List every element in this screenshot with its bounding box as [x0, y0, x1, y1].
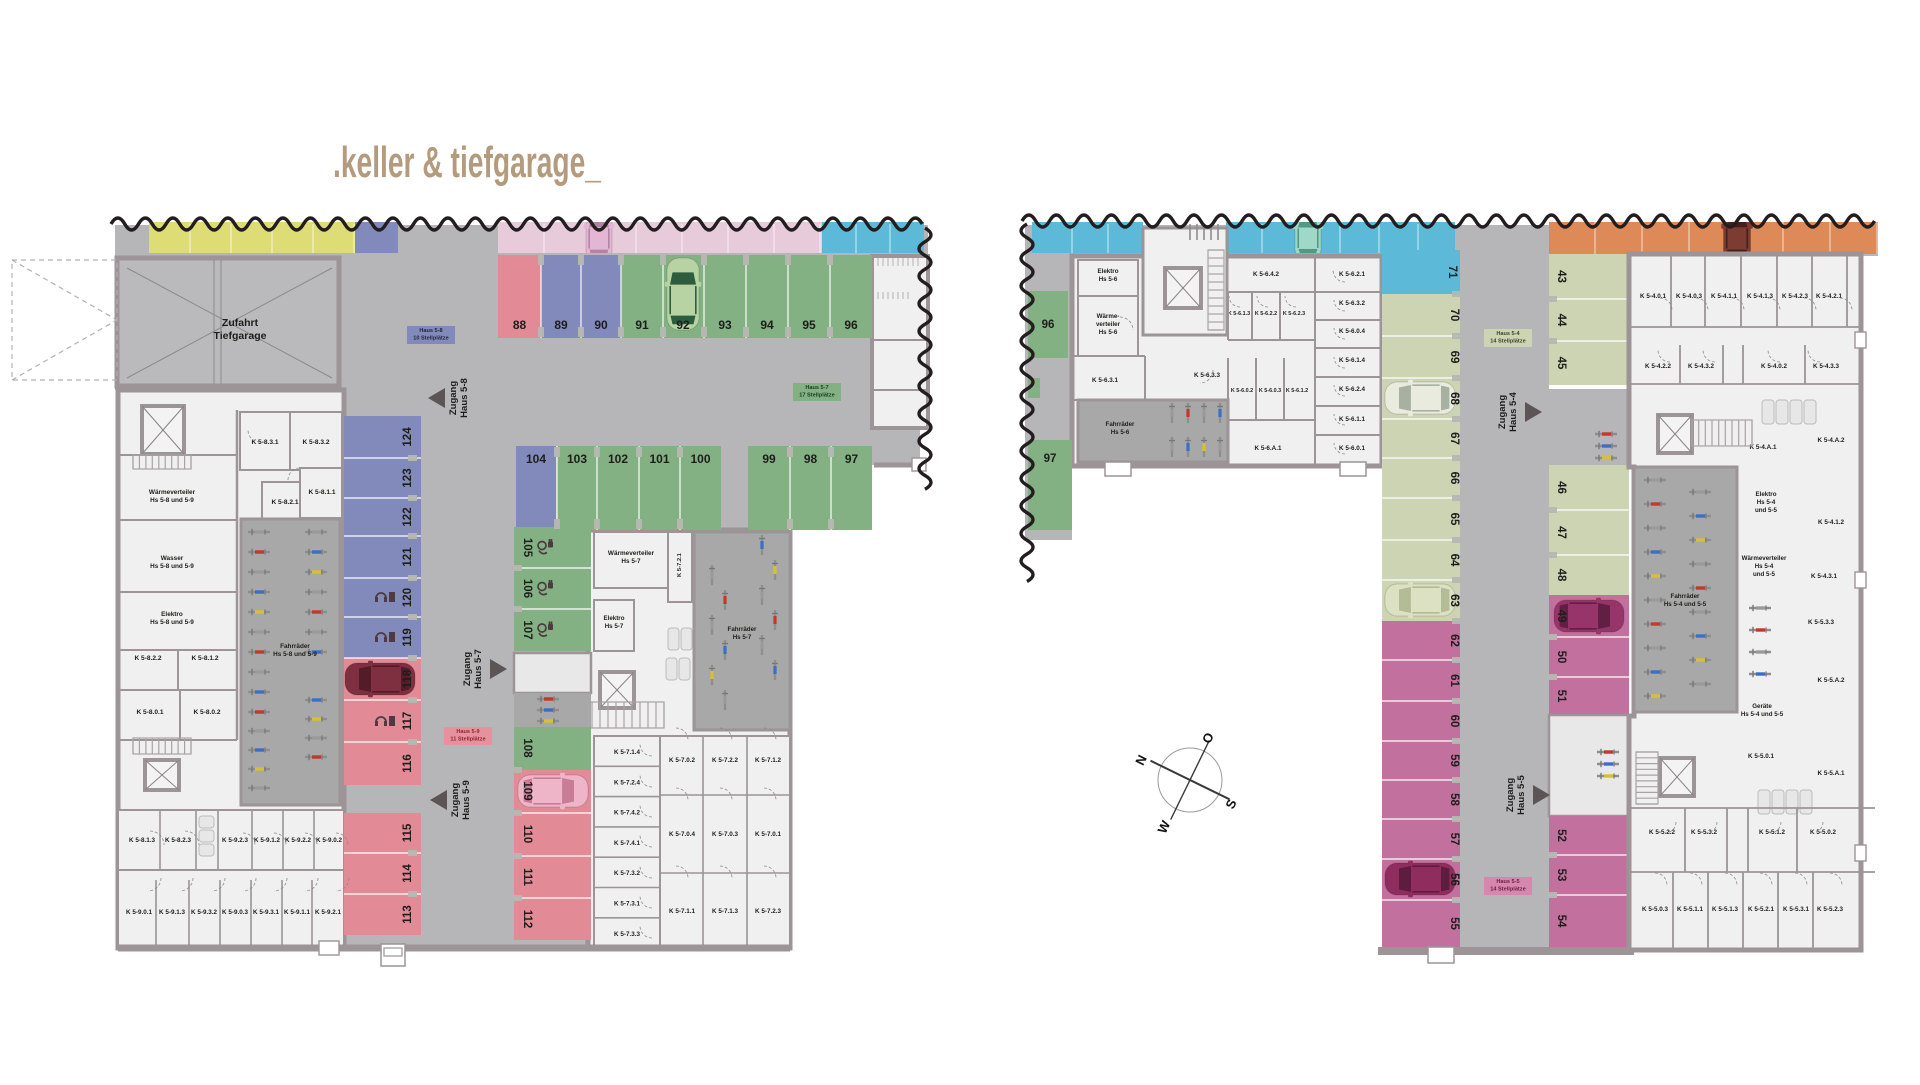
- svg-text:K 5-6.3.1: K 5-6.3.1: [1092, 377, 1118, 384]
- svg-text:K 5-4.3.1: K 5-4.3.1: [1811, 573, 1837, 580]
- svg-text:49: 49: [1555, 610, 1567, 623]
- svg-text:K 5-4.1.1: K 5-4.1.1: [1711, 293, 1737, 300]
- svg-text:K 5-6.0.4: K 5-6.0.4: [1339, 328, 1365, 335]
- svg-text:44: 44: [1555, 314, 1567, 327]
- svg-text:Wasser: Wasser: [161, 555, 184, 562]
- svg-text:K 5-4.0.2: K 5-4.0.2: [1761, 363, 1787, 370]
- svg-text:Wärmeverteiler: Wärmeverteiler: [149, 489, 196, 496]
- svg-text:97: 97: [845, 452, 859, 466]
- svg-text:Haus 5-7: Haus 5-7: [805, 385, 828, 391]
- svg-text:K 5-5.0.3: K 5-5.0.3: [1642, 906, 1668, 913]
- svg-text:K 5-5.A.2: K 5-5.A.2: [1818, 677, 1845, 684]
- svg-text:K 5-7.1.4: K 5-7.1.4: [614, 749, 640, 756]
- svg-text:Zugang: Zugang: [1497, 395, 1508, 429]
- svg-text:K 5-7.3.2: K 5-7.3.2: [614, 870, 640, 877]
- svg-text:110: 110: [521, 825, 533, 844]
- svg-text:K 5-8.0.1: K 5-8.0.1: [136, 709, 163, 716]
- svg-text:102: 102: [608, 452, 628, 466]
- svg-text:17 Stellplätze: 17 Stellplätze: [799, 393, 834, 399]
- svg-text:K 5-4.3.2: K 5-4.3.2: [1688, 363, 1714, 370]
- svg-text:Hs 5-8 und 5-9: Hs 5-8 und 5-9: [150, 563, 194, 570]
- svg-text:94: 94: [760, 318, 774, 332]
- svg-text:114: 114: [402, 864, 414, 883]
- svg-text:K 5-7.4.2: K 5-7.4.2: [614, 810, 640, 817]
- svg-text:97: 97: [1044, 453, 1057, 465]
- svg-text:96: 96: [1042, 319, 1055, 331]
- svg-text:.keller & tiefgarage_: .keller & tiefgarage_: [333, 138, 601, 187]
- svg-text:K 5-4.0.1: K 5-4.0.1: [1640, 293, 1666, 300]
- svg-text:K 5-8.1.2: K 5-8.1.2: [191, 655, 218, 662]
- svg-text:10 Stellplätze: 10 Stellplätze: [413, 336, 448, 342]
- svg-text:117: 117: [402, 712, 414, 731]
- svg-text:55: 55: [1448, 917, 1460, 930]
- svg-text:K 5-9.1.1: K 5-9.1.1: [284, 909, 310, 916]
- svg-text:K 5-5.2.1: K 5-5.2.1: [1748, 906, 1774, 913]
- svg-text:K 5-6.0.2: K 5-6.0.2: [1231, 388, 1253, 394]
- svg-text:K 5-9.3.1: K 5-9.3.1: [253, 909, 279, 916]
- svg-text:Zufahrt: Zufahrt: [222, 317, 259, 329]
- svg-text:K 5-7.2.2: K 5-7.2.2: [712, 757, 738, 764]
- svg-text:56: 56: [1448, 873, 1460, 886]
- svg-text:43: 43: [1555, 270, 1567, 283]
- svg-text:Hs 5-8 und 5-9: Hs 5-8 und 5-9: [273, 651, 317, 658]
- svg-text:K 5-4.3.3: K 5-4.3.3: [1813, 363, 1839, 370]
- svg-text:Hs 5-6: Hs 5-6: [1099, 276, 1118, 283]
- svg-text:Zugang: Zugang: [450, 783, 461, 817]
- svg-text:92: 92: [676, 318, 690, 332]
- svg-text:K 5-6.3.2: K 5-6.3.2: [1339, 300, 1365, 307]
- svg-text:52: 52: [1555, 829, 1567, 842]
- svg-text:109: 109: [521, 781, 533, 800]
- svg-text:K 5-9.0.3: K 5-9.0.3: [222, 909, 248, 916]
- svg-text:Fahrräder: Fahrräder: [728, 626, 757, 633]
- svg-text:90: 90: [594, 318, 608, 332]
- svg-text:K 5-6.1.1: K 5-6.1.1: [1339, 416, 1365, 423]
- svg-text:88: 88: [513, 318, 527, 332]
- svg-text:K 5-5.1.2: K 5-5.1.2: [1759, 829, 1785, 836]
- svg-text:K 5-4.2.3: K 5-4.2.3: [1782, 293, 1808, 300]
- svg-text:K 5-7.2.4: K 5-7.2.4: [614, 779, 640, 786]
- svg-text:K 5-9.3.2: K 5-9.3.2: [191, 909, 217, 916]
- svg-text:122: 122: [402, 507, 414, 526]
- svg-text:66: 66: [1448, 472, 1460, 485]
- svg-text:64: 64: [1448, 554, 1460, 567]
- svg-text:71: 71: [1446, 266, 1458, 279]
- svg-text:108: 108: [521, 738, 533, 758]
- svg-text:100: 100: [690, 452, 710, 466]
- svg-text:112: 112: [521, 910, 533, 929]
- svg-text:14 Stellplätze: 14 Stellplätze: [1490, 887, 1525, 893]
- svg-text:Zugang: Zugang: [462, 652, 473, 686]
- svg-text:60: 60: [1448, 715, 1460, 728]
- svg-text:K 5-6.1.3: K 5-6.1.3: [1228, 311, 1250, 317]
- svg-text:120: 120: [402, 588, 414, 607]
- svg-text:K 5-6.1.4: K 5-6.1.4: [1339, 357, 1365, 364]
- svg-text:K 5-6.0.3: K 5-6.0.3: [1259, 388, 1281, 394]
- svg-text:115: 115: [402, 823, 414, 842]
- svg-text:K 5-6.2.4: K 5-6.2.4: [1339, 386, 1365, 393]
- svg-text:Haus 5-8: Haus 5-8: [419, 328, 442, 334]
- svg-text:Zugang: Zugang: [448, 381, 459, 415]
- svg-text:103: 103: [567, 452, 587, 466]
- svg-text:Elektro: Elektro: [604, 615, 625, 622]
- svg-text:und 5-5: und 5-5: [1755, 507, 1778, 514]
- svg-text:K 5-7.2.3: K 5-7.2.3: [755, 908, 781, 915]
- svg-text:59: 59: [1448, 754, 1460, 767]
- svg-text:119: 119: [402, 628, 414, 647]
- svg-text:45: 45: [1555, 357, 1567, 370]
- svg-text:K 5-7.1.3: K 5-7.1.3: [712, 908, 738, 915]
- svg-text:69: 69: [1448, 351, 1460, 364]
- svg-text:K 5-5.1.1: K 5-5.1.1: [1677, 906, 1703, 913]
- svg-text:50: 50: [1555, 651, 1567, 664]
- svg-text:116: 116: [402, 754, 414, 773]
- svg-text:113: 113: [402, 905, 414, 924]
- svg-text:Haus 5-9: Haus 5-9: [461, 780, 472, 820]
- svg-text:K 5-7.3.1: K 5-7.3.1: [614, 901, 640, 908]
- svg-text:54: 54: [1555, 915, 1567, 928]
- svg-text:121: 121: [402, 547, 414, 567]
- svg-text:K 5-9.0.2: K 5-9.0.2: [316, 837, 342, 844]
- svg-text:Hs 5-8 und 5-9: Hs 5-8 und 5-9: [150, 619, 194, 626]
- svg-text:K 5-6.A.1: K 5-6.A.1: [1255, 445, 1282, 452]
- svg-text:107: 107: [521, 620, 533, 639]
- svg-text:106: 106: [521, 579, 533, 598]
- svg-text:K 5-5.3.3: K 5-5.3.3: [1808, 619, 1834, 626]
- svg-text:53: 53: [1555, 869, 1567, 882]
- svg-text:K 5-8.1.1: K 5-8.1.1: [308, 489, 335, 496]
- svg-text:K 5-8.3.2: K 5-8.3.2: [302, 439, 329, 446]
- svg-text:58: 58: [1448, 793, 1460, 806]
- svg-text:Hs 5-7: Hs 5-7: [605, 623, 624, 630]
- svg-text:65: 65: [1448, 513, 1460, 526]
- svg-text:123: 123: [402, 468, 414, 487]
- svg-text:K 5-9.1.3: K 5-9.1.3: [159, 909, 185, 916]
- svg-text:K 5-4.2.2: K 5-4.2.2: [1645, 363, 1671, 370]
- svg-text:Hs 5-6: Hs 5-6: [1111, 429, 1130, 436]
- svg-text:K 5-5.3.2: K 5-5.3.2: [1691, 829, 1717, 836]
- svg-text:Fahrräder: Fahrräder: [1106, 421, 1135, 428]
- svg-text:Elektro: Elektro: [1756, 491, 1777, 498]
- svg-text:K 5-9.1.2: K 5-9.1.2: [254, 837, 280, 844]
- svg-text:104: 104: [526, 452, 546, 466]
- svg-text:93: 93: [718, 318, 732, 332]
- svg-text:Haus 5-4: Haus 5-4: [1496, 331, 1520, 337]
- svg-text:K 5-4.1.3: K 5-4.1.3: [1747, 293, 1773, 300]
- svg-text:K 5-9.0.1: K 5-9.0.1: [126, 909, 152, 916]
- svg-text:K 5-5.2.3: K 5-5.2.3: [1817, 906, 1843, 913]
- svg-text:K 5-6.0.1: K 5-6.0.1: [1339, 445, 1365, 452]
- svg-text:14 Stellplätze: 14 Stellplätze: [1490, 339, 1525, 345]
- svg-text:98: 98: [804, 452, 818, 466]
- svg-text:Hs 5-4 und 5-5: Hs 5-4 und 5-5: [1664, 601, 1707, 608]
- svg-text:Hs 5-4 und 5-5: Hs 5-4 und 5-5: [1741, 711, 1784, 718]
- svg-text:K 5-5.1.3: K 5-5.1.3: [1712, 906, 1738, 913]
- svg-text:Tiefgarage: Tiefgarage: [214, 330, 267, 342]
- svg-text:K 5-8.1.3: K 5-8.1.3: [129, 837, 155, 844]
- svg-text:K 5-4.2.1: K 5-4.2.1: [1816, 293, 1842, 300]
- svg-text:K 5-9.2.2: K 5-9.2.2: [285, 837, 311, 844]
- svg-text:Elektro: Elektro: [161, 611, 183, 618]
- svg-text:Haus 5-5: Haus 5-5: [1496, 879, 1519, 885]
- svg-text:K 5-7.0.2: K 5-7.0.2: [669, 757, 695, 764]
- svg-text:Hs 5-6: Hs 5-6: [1099, 329, 1118, 336]
- svg-text:Haus 5-7: Haus 5-7: [473, 649, 484, 689]
- svg-text:62: 62: [1448, 634, 1460, 647]
- svg-text:K 5-7.0.1: K 5-7.0.1: [755, 831, 781, 838]
- svg-text:46: 46: [1555, 481, 1567, 494]
- svg-text:96: 96: [844, 318, 858, 332]
- svg-text:48: 48: [1555, 569, 1567, 582]
- svg-text:57: 57: [1448, 833, 1460, 846]
- svg-text:Haus 5-8: Haus 5-8: [459, 378, 470, 418]
- svg-text:51: 51: [1555, 690, 1567, 703]
- svg-text:K 5-6.2.1: K 5-6.2.1: [1339, 271, 1365, 278]
- svg-text:Hs 5-8 und 5-9: Hs 5-8 und 5-9: [150, 497, 194, 504]
- svg-text:verteiler: verteiler: [1096, 321, 1121, 328]
- svg-text:Haus 5-5: Haus 5-5: [1516, 774, 1527, 814]
- svg-text:K 5-9.2.3: K 5-9.2.3: [222, 837, 248, 844]
- svg-text:11 Stellplätze: 11 Stellplätze: [450, 737, 485, 743]
- svg-text:K 5-8.3.1: K 5-8.3.1: [251, 439, 278, 446]
- svg-text:K 5-5.3.1: K 5-5.3.1: [1783, 906, 1809, 913]
- svg-text:67: 67: [1448, 432, 1460, 445]
- svg-text:Haus 5-9: Haus 5-9: [456, 729, 479, 735]
- svg-text:Fahrräder: Fahrräder: [1671, 593, 1700, 600]
- svg-text:K 5-7.0.4: K 5-7.0.4: [669, 831, 695, 838]
- svg-text:und 5-5: und 5-5: [1753, 571, 1776, 578]
- svg-text:K 5-7.0.3: K 5-7.0.3: [712, 831, 738, 838]
- svg-text:101: 101: [649, 452, 669, 466]
- svg-text:68: 68: [1448, 392, 1460, 405]
- svg-text:Haus 5-4: Haus 5-4: [1508, 391, 1519, 431]
- svg-text:61: 61: [1448, 674, 1460, 687]
- svg-text:K 5-4.A.1: K 5-4.A.1: [1750, 444, 1777, 451]
- svg-text:Wärme-: Wärme-: [1097, 313, 1120, 320]
- svg-text:K 5-6.2.2: K 5-6.2.2: [1255, 311, 1277, 317]
- svg-text:K 5-7.3.3: K 5-7.3.3: [614, 931, 640, 938]
- svg-text:47: 47: [1555, 526, 1567, 539]
- svg-text:K 5-8.2.2: K 5-8.2.2: [134, 655, 161, 662]
- svg-text:95: 95: [802, 318, 816, 332]
- svg-text:K 5-7.1.2: K 5-7.1.2: [755, 757, 781, 764]
- svg-text:K 5-5.2.2: K 5-5.2.2: [1649, 829, 1675, 836]
- svg-text:Wärmeverteiler: Wärmeverteiler: [608, 550, 655, 557]
- svg-text:K 5-8.2.3: K 5-8.2.3: [165, 837, 191, 844]
- svg-text:K 5-8.2.1: K 5-8.2.1: [271, 499, 298, 506]
- svg-text:K 5-9.2.1: K 5-9.2.1: [315, 909, 341, 916]
- svg-text:63: 63: [1448, 594, 1460, 607]
- svg-text:K 5-7.1.1: K 5-7.1.1: [669, 908, 695, 915]
- svg-text:Hs 5-7: Hs 5-7: [621, 558, 641, 565]
- svg-text:K 5-6.4.2: K 5-6.4.2: [1253, 271, 1279, 278]
- svg-text:Hs 5-4: Hs 5-4: [1757, 499, 1776, 506]
- svg-text:Geräte: Geräte: [1752, 703, 1772, 710]
- svg-text:111: 111: [521, 868, 533, 887]
- svg-text:99: 99: [762, 452, 776, 466]
- svg-text:K 5-4.A.2: K 5-4.A.2: [1818, 437, 1845, 444]
- svg-text:118: 118: [402, 669, 414, 688]
- svg-text:Elektro: Elektro: [1098, 268, 1119, 275]
- svg-text:K 5-6.2.3: K 5-6.2.3: [1283, 311, 1305, 317]
- svg-text:Wärmeverteiler: Wärmeverteiler: [1742, 555, 1787, 562]
- svg-text:K 5-5.0.1: K 5-5.0.1: [1748, 753, 1774, 760]
- svg-text:Hs 5-7: Hs 5-7: [733, 634, 752, 641]
- svg-text:Zugang: Zugang: [1505, 778, 1516, 812]
- svg-text:91: 91: [635, 318, 649, 332]
- svg-text:K 5-8.0.2: K 5-8.0.2: [193, 709, 220, 716]
- svg-text:K 5-6.1.2: K 5-6.1.2: [1286, 388, 1308, 394]
- svg-text:105: 105: [521, 538, 533, 558]
- svg-text:Hs 5-4: Hs 5-4: [1755, 563, 1774, 570]
- svg-text:K 5-4.0.3: K 5-4.0.3: [1676, 293, 1702, 300]
- svg-text:K 5-4.1.2: K 5-4.1.2: [1818, 519, 1844, 526]
- svg-text:89: 89: [554, 318, 568, 332]
- svg-text:Fahrräder: Fahrräder: [280, 643, 310, 650]
- svg-text:K 5-6.3.3: K 5-6.3.3: [1194, 372, 1220, 379]
- svg-text:K 5-7.4.1: K 5-7.4.1: [614, 840, 640, 847]
- svg-text:70: 70: [1448, 309, 1460, 322]
- svg-text:K 5-5.A.1: K 5-5.A.1: [1818, 770, 1845, 777]
- svg-text:124: 124: [402, 427, 414, 447]
- svg-text:K 5-7.2.1: K 5-7.2.1: [677, 552, 683, 577]
